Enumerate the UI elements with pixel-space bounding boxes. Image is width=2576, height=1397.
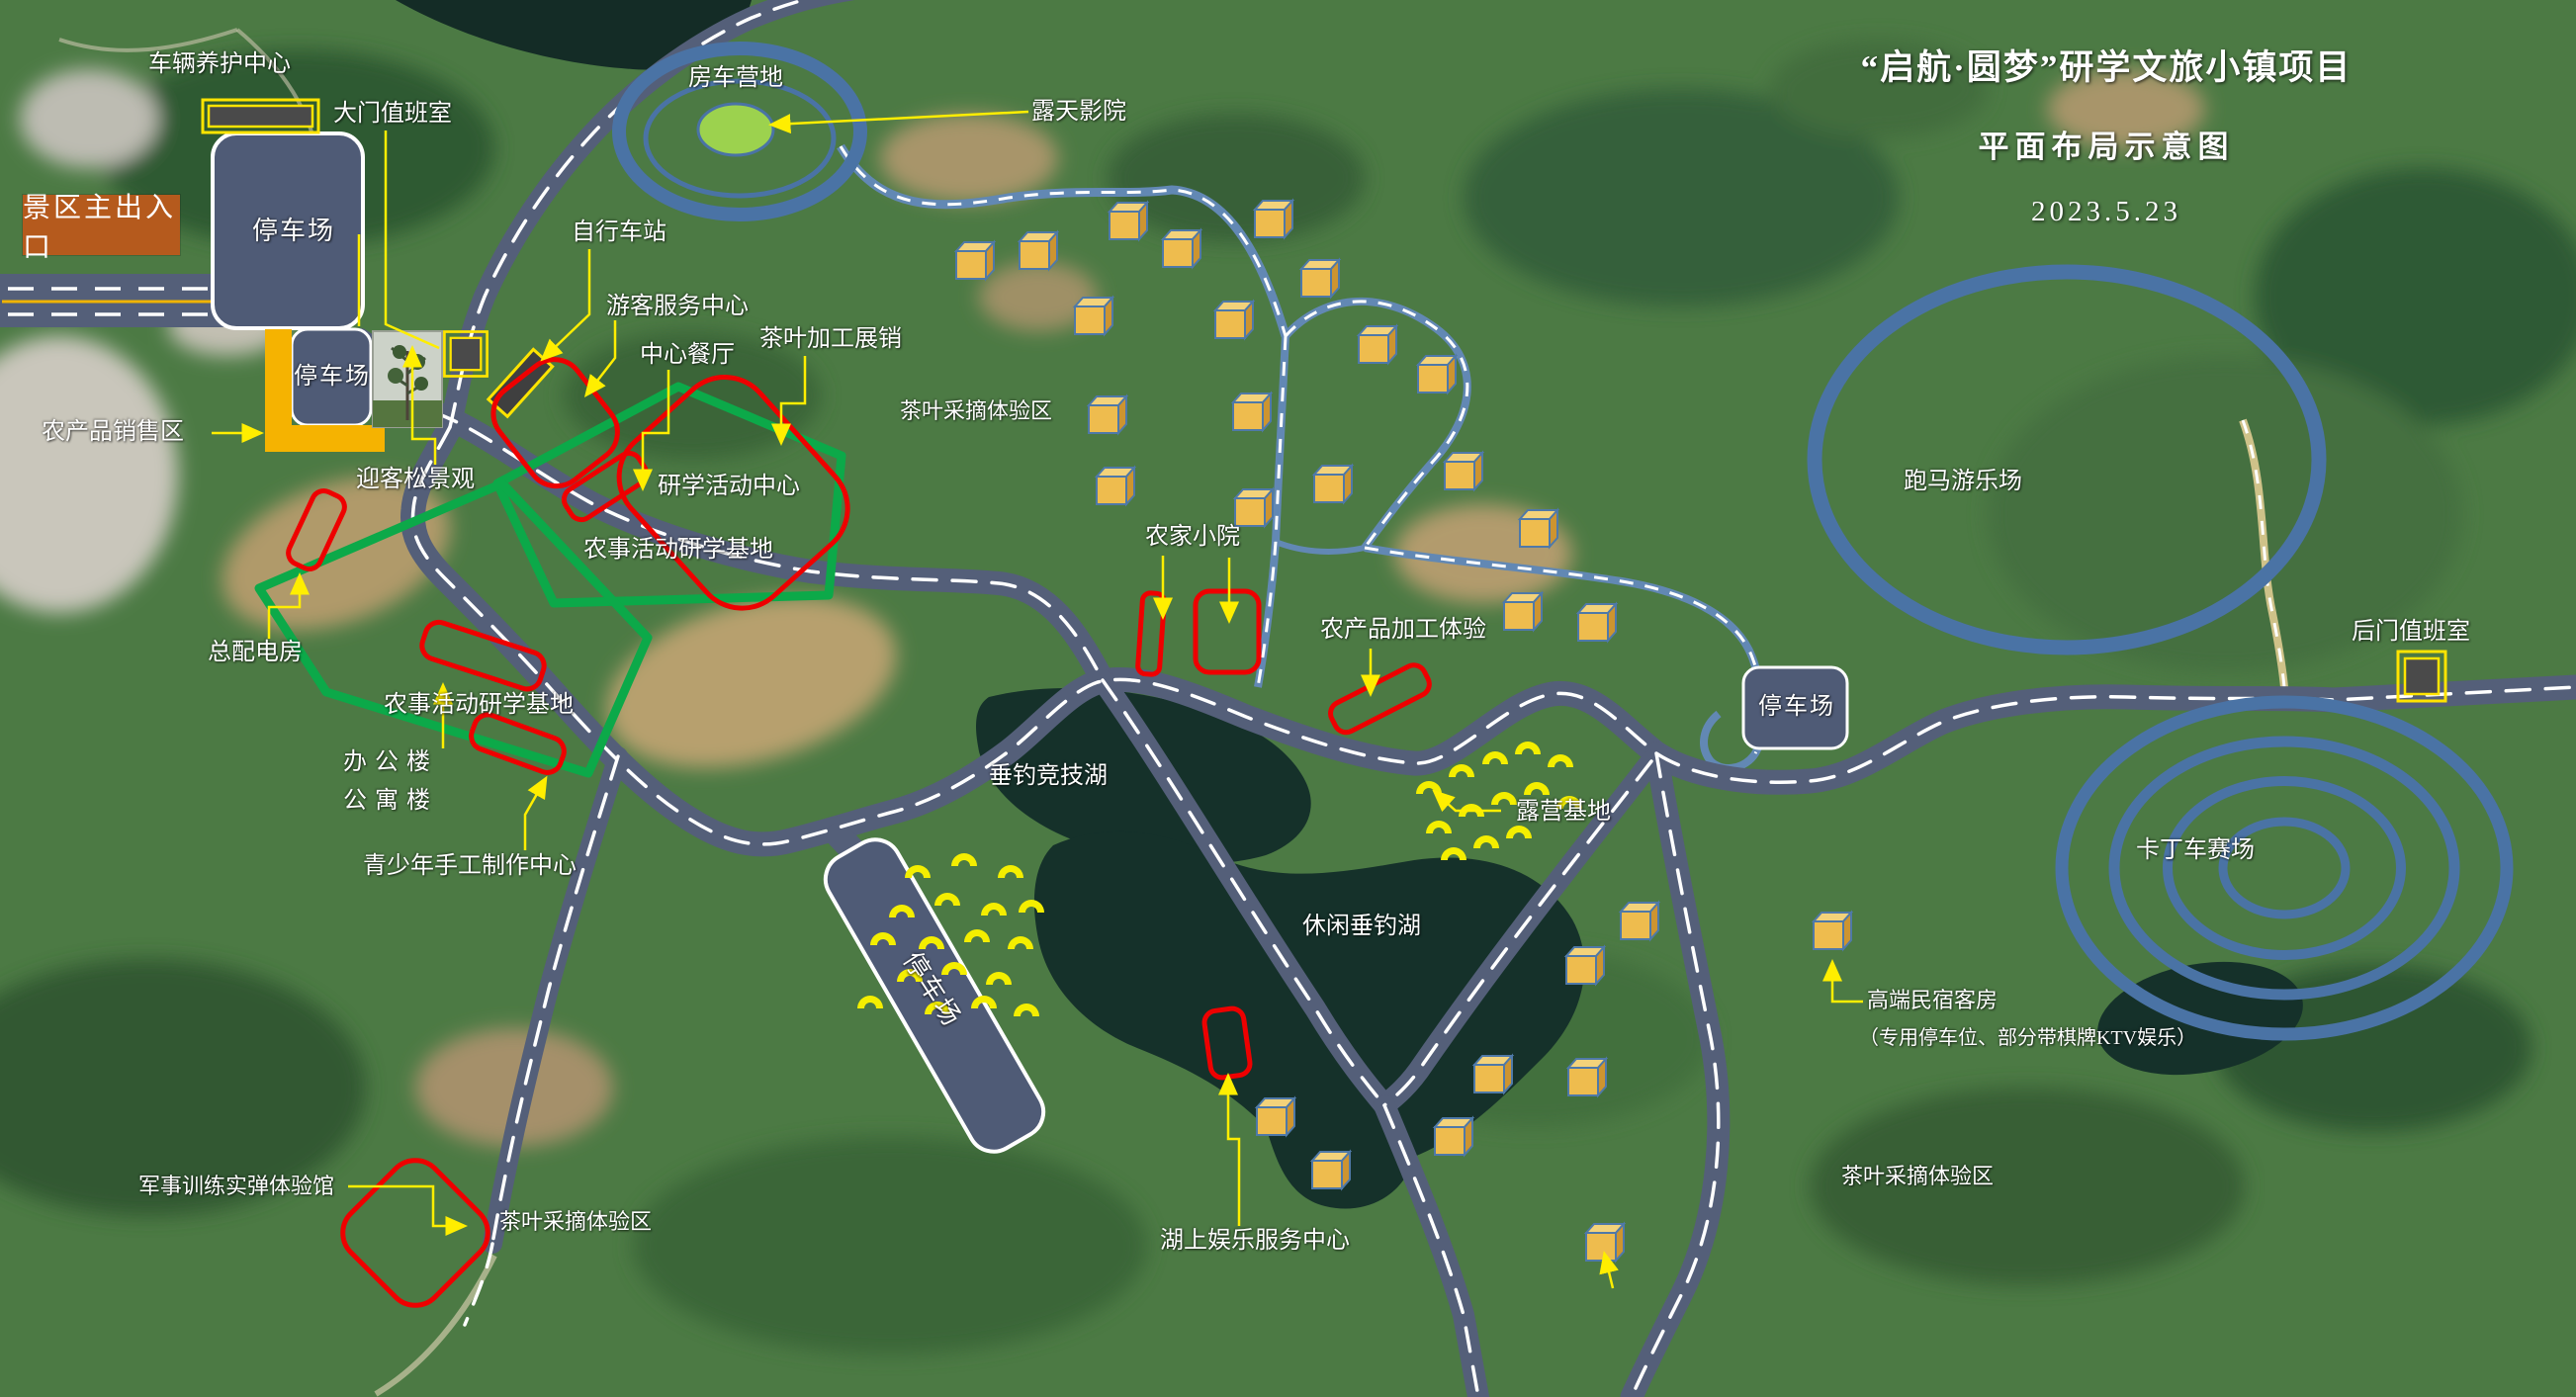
label-farm-house: 农家小院: [1145, 522, 1240, 552]
gate-office-icon: [444, 332, 487, 377]
label-rv-camp: 房车营地: [688, 63, 783, 93]
label-central-restaurant: 中心餐厅: [640, 340, 735, 370]
label-gate-office: 大门值班室: [333, 99, 452, 129]
label-tea-processing: 茶叶加工展销: [759, 324, 902, 354]
plan-date: 2023.5.23: [1859, 196, 2354, 228]
label-youth-craft: 青少年手工制作中心: [363, 851, 577, 881]
label-vehicle-center: 车辆养护中心: [148, 49, 291, 79]
label-tea-picking-3: 茶叶采摘体验区: [1841, 1163, 1994, 1190]
label-agri-sales: 农产品销售区: [42, 417, 184, 447]
site-plan-map: “启航·圆梦”研学文旅小镇项目 平面布局示意图 2023.5.23 景区主出入口…: [0, 0, 2576, 1397]
label-kart-track: 卡丁车赛场: [2136, 835, 2255, 865]
label-parking-east: 停车场: [1758, 692, 1835, 722]
label-bnb-2: （专用停车位、部分带棋牌KTV娱乐）: [1859, 1026, 2196, 1051]
label-farm-base-1: 农事活动研学基地: [583, 535, 773, 565]
main-entrance-badge: 景区主出入口: [23, 195, 180, 255]
label-study-center: 研学活动中心: [658, 472, 800, 501]
label-power-room: 总配电房: [208, 638, 303, 667]
label-bike-station: 自行车站: [572, 218, 666, 247]
label-lake-service: 湖上娱乐服务中心: [1160, 1226, 1350, 1256]
label-lake-leisure: 休闲垂钓湖: [1302, 912, 1421, 941]
title-block: “启航·圆梦”研学文旅小镇项目 平面布局示意图 2023.5.23: [1859, 40, 2354, 228]
label-open-air-cinema: 露天影院: [1031, 97, 1126, 127]
label-military-hall: 军事训练实弹体验馆: [138, 1173, 334, 1200]
label-parking-main: 停车场: [252, 216, 335, 248]
vehicle-center-icon: [203, 100, 318, 132]
label-camping-base: 露营基地: [1516, 797, 1611, 827]
label-lake-sport: 垂钓竞技湖: [989, 761, 1108, 791]
label-office-building: 办公楼: [343, 747, 438, 777]
label-tea-picking-2: 茶叶采摘体验区: [499, 1208, 652, 1236]
label-agri-processing: 农产品加工体验: [1320, 615, 1486, 645]
label-bnb-1: 高端民宿客房: [1867, 987, 1998, 1014]
label-welcome-pine: 迎客松景观: [356, 465, 475, 494]
rv-camp-green-core: [698, 104, 773, 155]
label-farm-base-2: 农事活动研学基地: [384, 690, 574, 720]
label-tea-picking-1: 茶叶采摘体验区: [900, 397, 1052, 425]
back-gate-office-icon: [2398, 652, 2445, 701]
label-parking-small: 停车场: [294, 362, 371, 392]
label-apartment-building: 公寓楼: [343, 786, 438, 816]
label-back-gate: 后门值班室: [2352, 617, 2470, 647]
project-title: “启航·圆梦”研学文旅小镇项目: [1859, 40, 2354, 90]
plan-subtitle: 平面布局示意图: [1859, 122, 2354, 166]
label-horse-ground: 跑马游乐场: [1904, 467, 2022, 496]
label-visitor-center: 游客服务中心: [606, 292, 749, 321]
